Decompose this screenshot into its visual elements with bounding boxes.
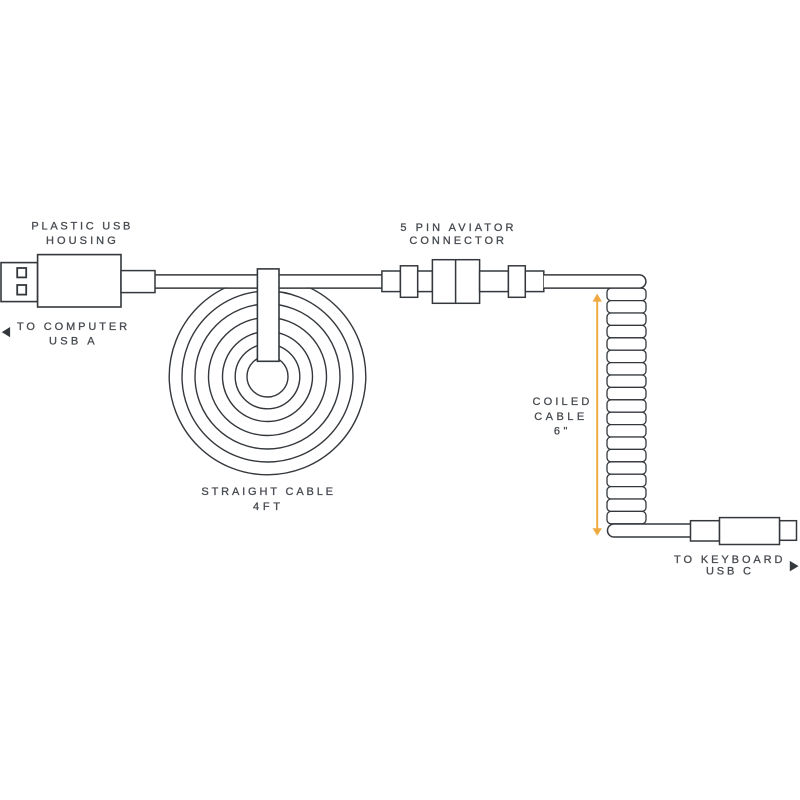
- svg-text:5 PIN AVIATOR: 5 PIN AVIATOR: [400, 222, 513, 234]
- svg-text:CABLE: CABLE: [534, 411, 584, 423]
- svg-text:HOUSING: HOUSING: [46, 235, 116, 247]
- svg-text:TO KEYBOARD: TO KEYBOARD: [674, 554, 783, 566]
- svg-text:6": 6": [554, 426, 568, 438]
- svg-text:STRAIGHT CABLE: STRAIGHT CABLE: [201, 486, 333, 498]
- svg-text:COILED: COILED: [533, 396, 590, 408]
- svg-text:PLASTIC USB: PLASTIC USB: [31, 221, 130, 233]
- svg-text:4FT: 4FT: [253, 501, 280, 513]
- svg-text:CONNECTOR: CONNECTOR: [409, 235, 504, 247]
- svg-text:USB A: USB A: [49, 336, 95, 348]
- svg-text:USB C: USB C: [706, 566, 751, 578]
- svg-text:TO COMPUTER: TO COMPUTER: [17, 321, 127, 333]
